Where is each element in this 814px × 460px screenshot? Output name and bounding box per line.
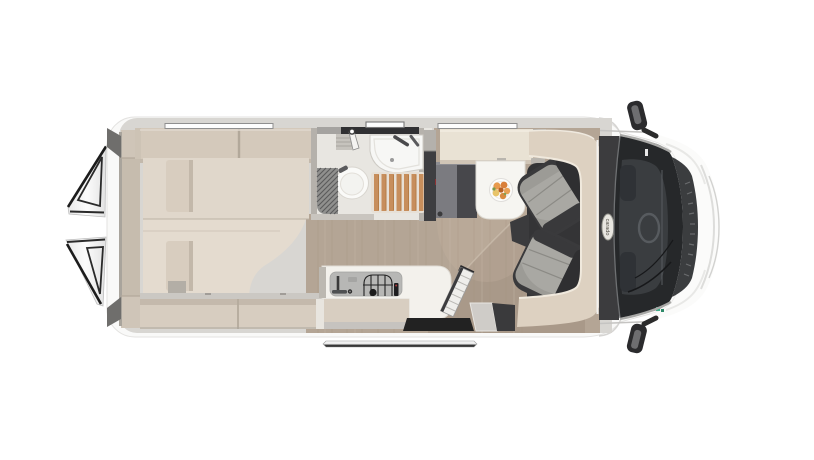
svg-text:carado: carado (604, 219, 610, 236)
